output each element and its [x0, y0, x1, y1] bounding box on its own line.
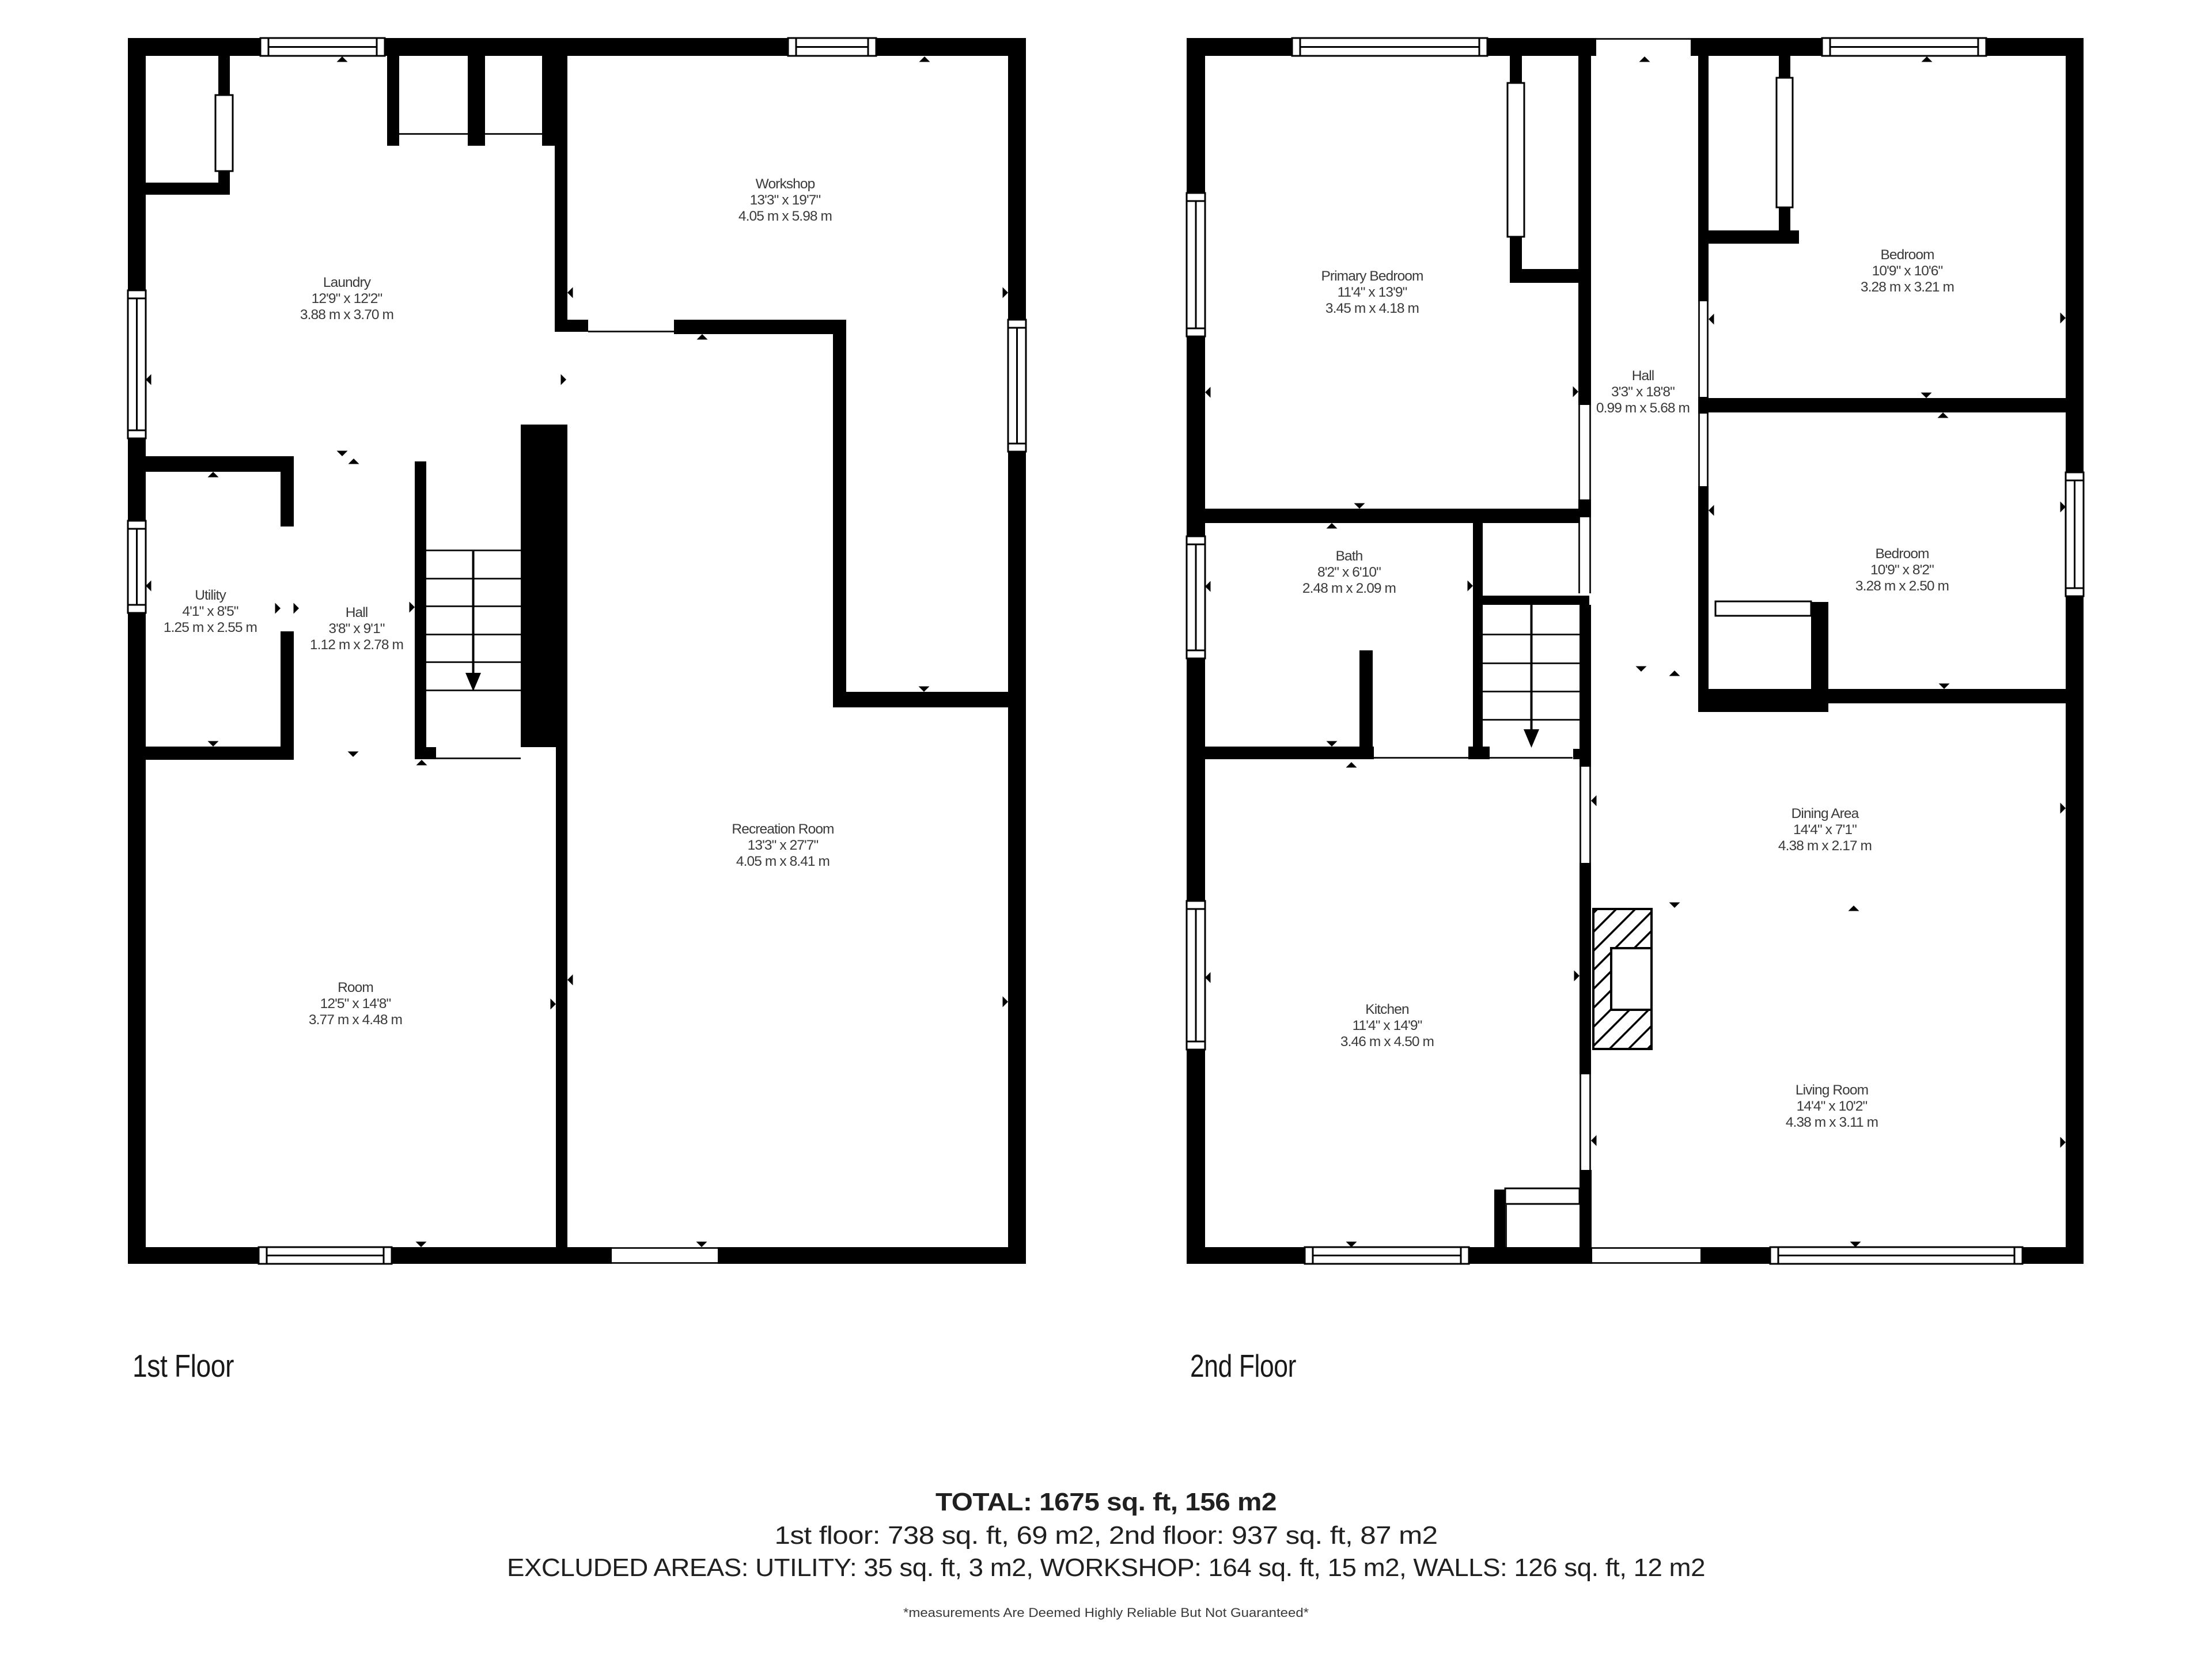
svg-text:*measurements Are Deemed Highl: *measurements Are Deemed Highly Reliable…: [903, 1605, 1309, 1620]
svg-text:1st floor: 738 sq. ft, 69 m2,: 1st floor: 738 sq. ft, 69 m2, 2nd floor:…: [775, 1521, 1438, 1550]
svg-text:TOTAL: 1675 sq. ft, 156 m2: TOTAL: 1675 sq. ft, 156 m2: [935, 1488, 1277, 1516]
svg-text:Living Room14'4" x 10'2"4.38 m: Living Room14'4" x 10'2"4.38 m x 3.11 m: [1786, 1082, 1878, 1130]
svg-text:1st Floor: 1st Floor: [132, 1348, 234, 1384]
svg-text:2nd Floor: 2nd Floor: [1190, 1348, 1296, 1384]
svg-text:EXCLUDED AREAS: UTILITY: 35 sq: EXCLUDED AREAS: UTILITY: 35 sq. ft, 3 m2…: [507, 1554, 1705, 1582]
